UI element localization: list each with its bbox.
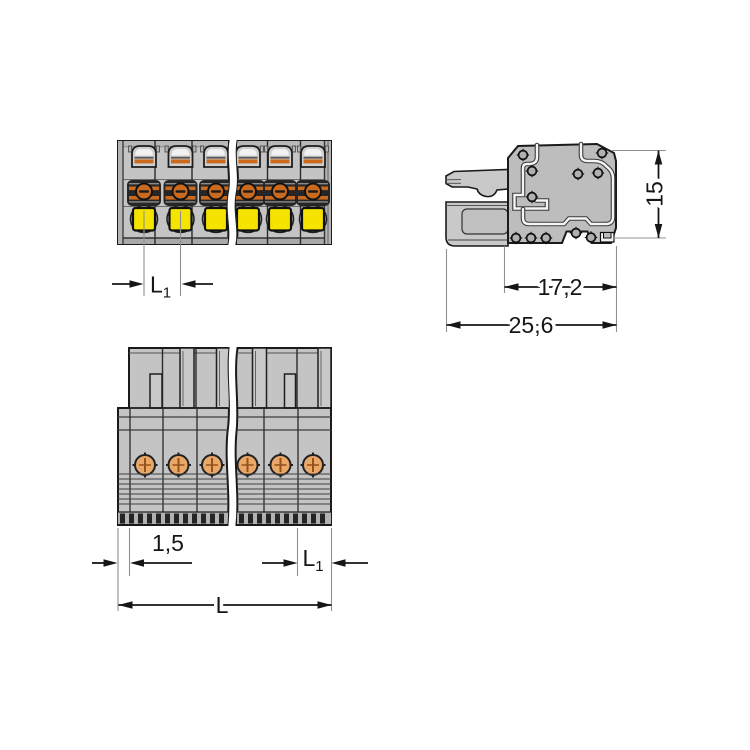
end-plate xyxy=(118,141,123,244)
actuation-tab xyxy=(318,348,331,408)
dimension-total-length: L xyxy=(119,592,332,618)
release-lever xyxy=(446,170,508,197)
drawing-page: L1 17,2 25,6 15 xyxy=(0,0,750,750)
actuation-tab xyxy=(180,348,194,408)
window-contact-bar xyxy=(135,159,154,163)
connector-pole xyxy=(263,146,297,233)
connector-pole xyxy=(296,146,330,233)
dimension-height: 15 xyxy=(612,151,668,239)
actuation-tab xyxy=(253,348,267,408)
window-contact-bar xyxy=(171,159,190,163)
plug-sleeve xyxy=(446,202,508,246)
side-view xyxy=(446,144,616,246)
dimension-edge-offset: 1,5 xyxy=(92,528,192,611)
push-button xyxy=(269,208,291,231)
t-slot xyxy=(601,233,615,243)
window-contact-bar xyxy=(239,159,258,163)
front-poles-right xyxy=(231,141,331,244)
dimension-label-pitch-front: L1 xyxy=(150,272,171,302)
base-strip xyxy=(118,238,228,244)
connector-technical-drawing: L1 17,2 25,6 15 xyxy=(0,0,750,750)
window-contact-bar xyxy=(271,159,290,163)
dimension-pitch-bottom: L1 xyxy=(262,528,368,611)
dimension-label-height: 15 xyxy=(642,181,668,207)
front-poles-left xyxy=(118,141,233,244)
push-button xyxy=(302,208,324,231)
actuation-tab xyxy=(150,374,162,408)
bottom-view xyxy=(118,348,331,525)
actuation-tab xyxy=(217,348,230,408)
side-housing-body xyxy=(508,144,616,244)
actuation-tab xyxy=(285,374,296,408)
dimension-total-depth: 25,6 xyxy=(447,249,617,338)
window-contact-bar xyxy=(207,159,226,163)
dimension-label-housing-depth: 17,2 xyxy=(538,274,583,300)
front-view xyxy=(118,141,331,244)
base-strip xyxy=(237,238,331,244)
dimension-label-total-depth: 25,6 xyxy=(509,312,554,338)
window-contact-bar xyxy=(304,159,323,163)
dimension-label-total-length: L xyxy=(216,592,229,618)
push-button xyxy=(237,208,259,231)
dimension-label-pitch-bottom: L1 xyxy=(303,545,324,575)
dimension-label-edge-offset: 1,5 xyxy=(152,530,184,556)
push-button xyxy=(205,208,227,231)
